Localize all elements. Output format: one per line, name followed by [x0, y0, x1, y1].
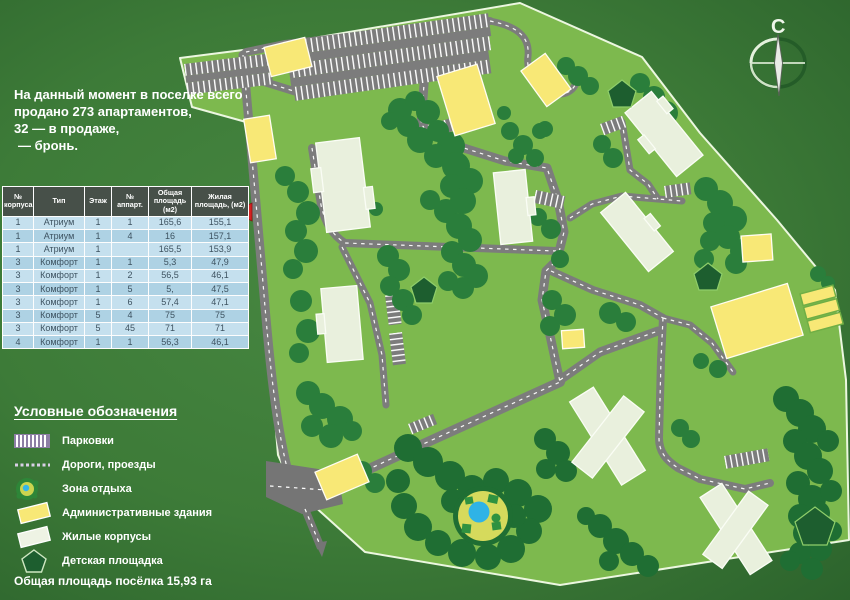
- playground-icon: [12, 548, 62, 574]
- table-cell: Комфорт: [34, 310, 84, 322]
- legend: Условные обозначения Парковки Дороги, пр…: [12, 403, 252, 573]
- table-cell: 1: [85, 243, 111, 255]
- table-cell: 3: [3, 310, 33, 322]
- table-cell: 155,1: [192, 217, 248, 229]
- table-cell: 1: [85, 336, 111, 348]
- table-header-cell: Этаж: [85, 187, 111, 216]
- table-row: 1Атриум1165,5153,9: [3, 243, 248, 255]
- table-cell: 4: [3, 336, 33, 348]
- table-cell: 71: [192, 323, 248, 335]
- table-cell: 3: [3, 283, 33, 295]
- table-cell: 3: [3, 257, 33, 269]
- table-cell: 4: [112, 230, 148, 242]
- table-cell: Комфорт: [34, 296, 84, 308]
- table-cell: 1: [85, 230, 111, 242]
- legend-item: Жилые корпусы: [12, 525, 252, 549]
- table-cell: 5,: [149, 283, 191, 295]
- apartments-table-body: 1Атриум11165,6155,11Атриум1416157,11Атри…: [3, 217, 248, 349]
- legend-label: Парковки: [62, 435, 114, 447]
- table-cell: 1: [3, 243, 33, 255]
- table-cell: 153,9: [192, 243, 248, 255]
- table-cell: Комфорт: [34, 283, 84, 295]
- intro-line: продано 273 апартаментов,: [14, 103, 264, 120]
- table-cell: 1: [3, 230, 33, 242]
- table-cell: Атриум: [34, 230, 84, 242]
- recreation-icon: [12, 476, 62, 502]
- table-cell: 47,5: [192, 283, 248, 295]
- table-cell: 1: [85, 270, 111, 282]
- compass: С: [751, 16, 805, 96]
- residential-building-icon: [12, 525, 62, 549]
- table-cell: 5: [85, 310, 111, 322]
- table-row: 3Комфорт1256,546,1: [3, 270, 248, 282]
- table-cell: 165,6: [149, 217, 191, 229]
- table-cell: 1: [3, 217, 33, 229]
- table-cell: 71: [149, 323, 191, 335]
- table-cell: 157,1: [192, 230, 248, 242]
- intro-text: На данный момент в поселке всего продано…: [14, 86, 264, 154]
- table-cell: Комфорт: [34, 336, 84, 348]
- table-row: 1Атриум11165,6155,1: [3, 217, 248, 229]
- table-cell: 4: [112, 310, 148, 322]
- table-cell: Комфорт: [34, 270, 84, 282]
- table-cell: Комфорт: [34, 257, 84, 269]
- table-cell: 5,3: [149, 257, 191, 269]
- table-cell: Комфорт: [34, 323, 84, 335]
- table-cell: [112, 243, 148, 255]
- admin-building: [561, 329, 584, 348]
- table-row: 3Комфорт547575: [3, 310, 248, 322]
- legend-item: Административные здания: [12, 501, 252, 525]
- road-icon: [12, 460, 62, 470]
- table-cell: 75: [149, 310, 191, 322]
- table-cell: 47,1: [192, 296, 248, 308]
- table-row: 3Комфорт1657,447,1: [3, 296, 248, 308]
- table-cell: 165,5: [149, 243, 191, 255]
- table-cell: 1: [85, 257, 111, 269]
- table-row: 3Комфорт115,347,9: [3, 257, 248, 269]
- intro-line: — бронь.: [18, 137, 264, 154]
- table-cell: 46,1: [192, 270, 248, 282]
- admin-building: [741, 234, 773, 262]
- table-cell: 56,3: [149, 336, 191, 348]
- table-cell: 6: [112, 296, 148, 308]
- table-header-row: № корпусаТипЭтаж№ аппарт.Общая площадь (…: [3, 187, 248, 216]
- admin-building-icon: [12, 501, 62, 525]
- legend-label: Дороги, проезды: [62, 459, 156, 471]
- legend-label: Административные здания: [62, 507, 212, 519]
- legend-item: Зона отдыха: [12, 477, 252, 501]
- table-cell: 1: [85, 217, 111, 229]
- legend-title: Условные обозначения: [14, 403, 252, 419]
- legend-label: Детская площадка: [62, 555, 163, 567]
- legend-label: Зона отдыха: [62, 483, 132, 495]
- table-row: 3Комфорт155,47,5: [3, 283, 248, 295]
- table-row: 1Атриум1416157,1: [3, 230, 248, 242]
- legend-label: Жилые корпусы: [62, 531, 151, 543]
- table-cell: 16: [149, 230, 191, 242]
- legend-item: Детская площадка: [12, 549, 252, 573]
- table-row: 3Комфорт5457171: [3, 323, 248, 335]
- legend-item: Парковки: [12, 429, 252, 453]
- table-cell: 3: [3, 323, 33, 335]
- table-cell: 1: [112, 336, 148, 348]
- table-cell: Атриум: [34, 243, 84, 255]
- table-cell: 1: [85, 283, 111, 295]
- table-header-cell: № аппарт.: [112, 187, 148, 216]
- recreation-zone: [453, 486, 513, 546]
- table-cell: 1: [112, 257, 148, 269]
- total-area-text: Общая площадь посёлка 15,93 га: [14, 574, 212, 588]
- table-header-cell: Тип: [34, 187, 84, 216]
- site-plan-page: С На данный момент в поселке всего прода…: [0, 0, 850, 600]
- pond: [469, 502, 490, 523]
- table-cell: 5: [112, 283, 148, 295]
- table-header-cell: № корпуса: [3, 187, 33, 216]
- table-cell: 5: [85, 323, 111, 335]
- intro-line: На данный момент в поселке всего: [14, 86, 264, 103]
- table-cell: 1: [112, 217, 148, 229]
- table-cell: 3: [3, 296, 33, 308]
- table-cell: 75: [192, 310, 248, 322]
- table-cell: 47,9: [192, 257, 248, 269]
- table-cell: 57,4: [149, 296, 191, 308]
- table-header-cell: Жилая площадь, (м2): [192, 187, 248, 216]
- apartments-table: № корпусаТипЭтаж№ аппарт.Общая площадь (…: [2, 186, 249, 349]
- table-cell: 2: [112, 270, 148, 282]
- table-cell: 45: [112, 323, 148, 335]
- intro-line: 32 — в продаже,: [14, 120, 264, 137]
- table-cell: 56,5: [149, 270, 191, 282]
- table-cell: 1: [85, 296, 111, 308]
- table-cell: 46,1: [192, 336, 248, 348]
- table-cell: 3: [3, 270, 33, 282]
- legend-item: Дороги, проезды: [12, 453, 252, 477]
- table-cell: Атриум: [34, 217, 84, 229]
- table-header-cell: Общая площадь (м2): [149, 187, 191, 216]
- table-row: 4Комфорт1156,346,1: [3, 336, 248, 348]
- parking-icon: [12, 431, 62, 451]
